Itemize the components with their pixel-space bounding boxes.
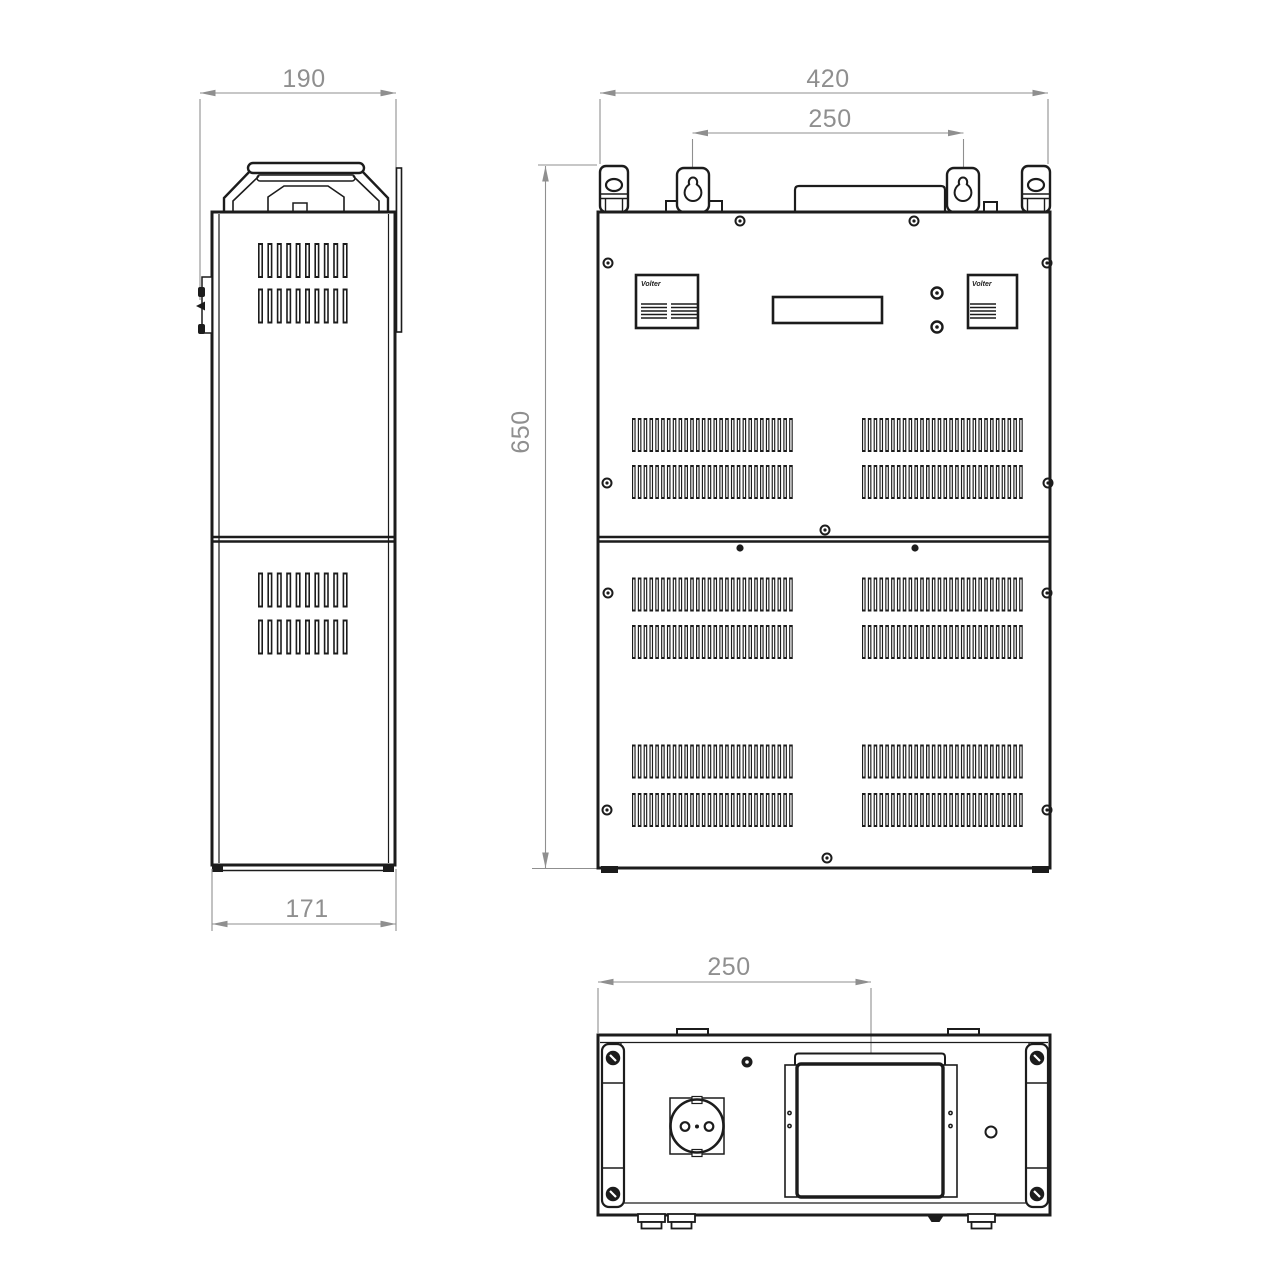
bracket-rail-right [1026, 1044, 1048, 1207]
corner-bracket-left [600, 166, 628, 212]
side-view: 190 [196, 65, 402, 931]
foot [638, 1214, 665, 1229]
side-section-divider [212, 537, 395, 542]
dim-label-250-bottom: 250 [707, 953, 750, 981]
side-vent-grille-lower [258, 590, 348, 637]
keyhole-bracket-right [947, 168, 997, 212]
dim-front-mount-spacing: 250 [693, 105, 964, 202]
dim-label-420: 420 [806, 65, 849, 93]
brand-logo: Volter [641, 281, 662, 288]
front-vent-grille-bottom [632, 762, 1023, 811]
terminal-cover-plate [785, 1054, 957, 1198]
dim-label-171: 171 [285, 895, 328, 923]
corner-bracket-right [1022, 166, 1050, 212]
carry-handle [224, 163, 388, 212]
bottom-screw [742, 1057, 753, 1068]
top-cover-plate [795, 186, 945, 212]
front-section-divider [598, 537, 1050, 542]
wall-bracket-plate-edge [397, 168, 402, 332]
panel-button-top[interactable] [932, 288, 943, 299]
bottom-view: 250 [598, 953, 1050, 1229]
panel-button-bottom[interactable] [932, 322, 943, 333]
front-vent-grille-top [632, 435, 1023, 482]
foot [668, 1214, 695, 1229]
drawing-canvas: 190 [0, 0, 1280, 1280]
bracket-rail-left [602, 1044, 624, 1207]
keyhole-bracket-left [666, 168, 722, 212]
front-foot-left [601, 866, 618, 873]
display-window [773, 297, 882, 323]
power-socket[interactable] [670, 1097, 724, 1157]
brand-logo: Volter [972, 281, 993, 288]
breaker-module-right[interactable]: Volter [968, 275, 1017, 328]
dim-front-height: 650 [507, 165, 597, 869]
side-terminal-block [196, 277, 212, 334]
bottom-latch [927, 1215, 944, 1222]
cable-hole [986, 1127, 997, 1138]
side-vent-grille-upper [258, 261, 348, 307]
dim-bottom-plate-offset: 250 [598, 953, 871, 1068]
foot [968, 1214, 995, 1229]
dim-label-250-front: 250 [808, 105, 851, 133]
front-foot-right [1032, 866, 1049, 873]
breaker-module-left[interactable]: Volter [636, 275, 698, 328]
dim-side-bottom-depth: 171 [212, 869, 396, 931]
dim-label-190: 190 [282, 65, 325, 93]
dim-label-650: 650 [507, 410, 535, 453]
front-vent-grille-middle [632, 595, 1023, 643]
front-view: 420 250 650 Volter [507, 65, 1053, 873]
side-body [212, 212, 395, 865]
